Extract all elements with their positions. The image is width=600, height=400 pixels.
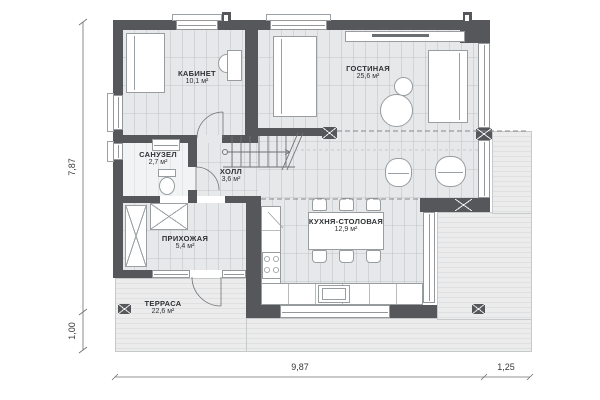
office-window-top bbox=[176, 20, 218, 30]
room-name: ГОСТИНАЯ bbox=[346, 64, 390, 73]
downpipe-top-left bbox=[222, 12, 231, 30]
wall-entry-hall-left bbox=[123, 196, 160, 203]
entry-window-right bbox=[222, 270, 246, 278]
toilet-tank bbox=[158, 169, 176, 177]
column-glass-wall bbox=[476, 128, 492, 140]
room-label-entry: ПРИХОЖАЯ 5,4 м² bbox=[162, 234, 208, 252]
office-door-opening bbox=[197, 135, 222, 143]
bathroom-door-opening bbox=[188, 167, 197, 190]
toilet-bowl bbox=[159, 177, 175, 195]
column-living-deck bbox=[455, 199, 472, 211]
hall-floor bbox=[197, 135, 258, 196]
armchair-left bbox=[385, 158, 412, 187]
terrace-deck-right-upper bbox=[492, 131, 532, 214]
room-area: 22,6 м² bbox=[145, 308, 182, 317]
living-glass-wall-upper bbox=[478, 43, 490, 128]
wall-bathroom-right-lower bbox=[188, 190, 197, 203]
wall-entry-kitchen-divider bbox=[246, 196, 261, 310]
terrace-deck-left bbox=[115, 278, 248, 352]
kitchen-window-bottom bbox=[280, 305, 390, 318]
wall-office-bottom-right bbox=[222, 135, 258, 143]
room-name: ПРИХОЖАЯ bbox=[162, 234, 208, 243]
column-deck-right bbox=[472, 304, 485, 314]
armchair-right bbox=[435, 156, 466, 187]
room-area: 25,6 м² bbox=[346, 73, 390, 82]
wall-office-living-divider bbox=[245, 30, 258, 135]
wardrobe-left bbox=[125, 205, 147, 267]
kitchen-sink-basin bbox=[322, 288, 346, 300]
room-name: САНУЗЕЛ bbox=[139, 150, 177, 159]
room-label-living: ГОСТИНАЯ 25,6 м² bbox=[346, 64, 390, 82]
living-sofa-left bbox=[273, 36, 317, 117]
office-window-left bbox=[113, 95, 123, 130]
living-glass-wall-lower bbox=[478, 140, 490, 198]
dining-chair bbox=[366, 198, 381, 211]
room-name: ХОЛЛ bbox=[220, 167, 242, 176]
wall-kitchen-bottom-left bbox=[246, 305, 280, 318]
room-label-kitchen: КУХНЯ-СТОЛОВАЯ 12,9 м² bbox=[309, 217, 383, 235]
dimension-left-total: 7,87 bbox=[67, 158, 77, 176]
dining-chair bbox=[339, 250, 354, 263]
living-sofa-right bbox=[428, 50, 468, 123]
wall-bathroom-right-upper bbox=[188, 143, 197, 167]
dining-chair bbox=[366, 250, 381, 263]
room-label-bathroom: САНУЗЕЛ 2,7 м² bbox=[139, 150, 177, 168]
wardrobe-top bbox=[150, 203, 188, 230]
downpipe-top-right bbox=[463, 12, 472, 30]
room-area: 5,4 м² bbox=[162, 243, 208, 252]
room-name: КУХНЯ-СТОЛОВАЯ bbox=[309, 217, 383, 226]
wall-entry-hall-right bbox=[225, 196, 246, 203]
room-area: 3,6 м² bbox=[220, 176, 242, 185]
coffee-table-large bbox=[380, 94, 413, 127]
floor-plan-canvas: КАБИНЕТ 10,1 м² ГОСТИНАЯ 25,6 м² САНУЗЕЛ… bbox=[0, 0, 600, 400]
room-area: 10,1 м² bbox=[178, 78, 216, 87]
room-name: ТЕРРАСА bbox=[145, 299, 182, 308]
tv-screen bbox=[372, 34, 429, 37]
stove bbox=[262, 252, 281, 279]
dimension-bottom-total: 9,87 bbox=[291, 362, 309, 372]
dining-chair bbox=[339, 198, 354, 211]
room-label-hall: ХОЛЛ 3,6 м² bbox=[220, 167, 242, 185]
room-name: КАБИНЕТ bbox=[178, 69, 216, 78]
room-label-terrace: ТЕРРАСА 22,6 м² bbox=[145, 299, 182, 317]
column-terrace-left bbox=[118, 304, 131, 314]
entry-window-left bbox=[152, 270, 190, 278]
room-area: 12,9 м² bbox=[309, 226, 383, 235]
wall-stair-guard bbox=[258, 128, 322, 136]
entry-door-opening bbox=[190, 270, 222, 278]
column-hall-living bbox=[322, 127, 337, 139]
bathroom-window-left bbox=[113, 143, 123, 160]
living-window-top bbox=[270, 20, 327, 30]
dimension-bottom-deck: 1,25 bbox=[497, 362, 515, 372]
kitchen-glass-wall-right bbox=[423, 212, 435, 303]
terrace-deck-bottom bbox=[246, 318, 532, 352]
office-sofa bbox=[126, 33, 165, 93]
wall-kitchen-bottom-right bbox=[390, 305, 437, 318]
room-label-office: КАБИНЕТ 10,1 м² bbox=[178, 69, 216, 87]
dining-chair bbox=[312, 198, 327, 211]
room-area: 2,7 м² bbox=[139, 159, 177, 168]
dining-chair bbox=[312, 250, 327, 263]
office-desk bbox=[227, 50, 242, 81]
dimension-left-terrace: 1,00 bbox=[67, 322, 77, 340]
